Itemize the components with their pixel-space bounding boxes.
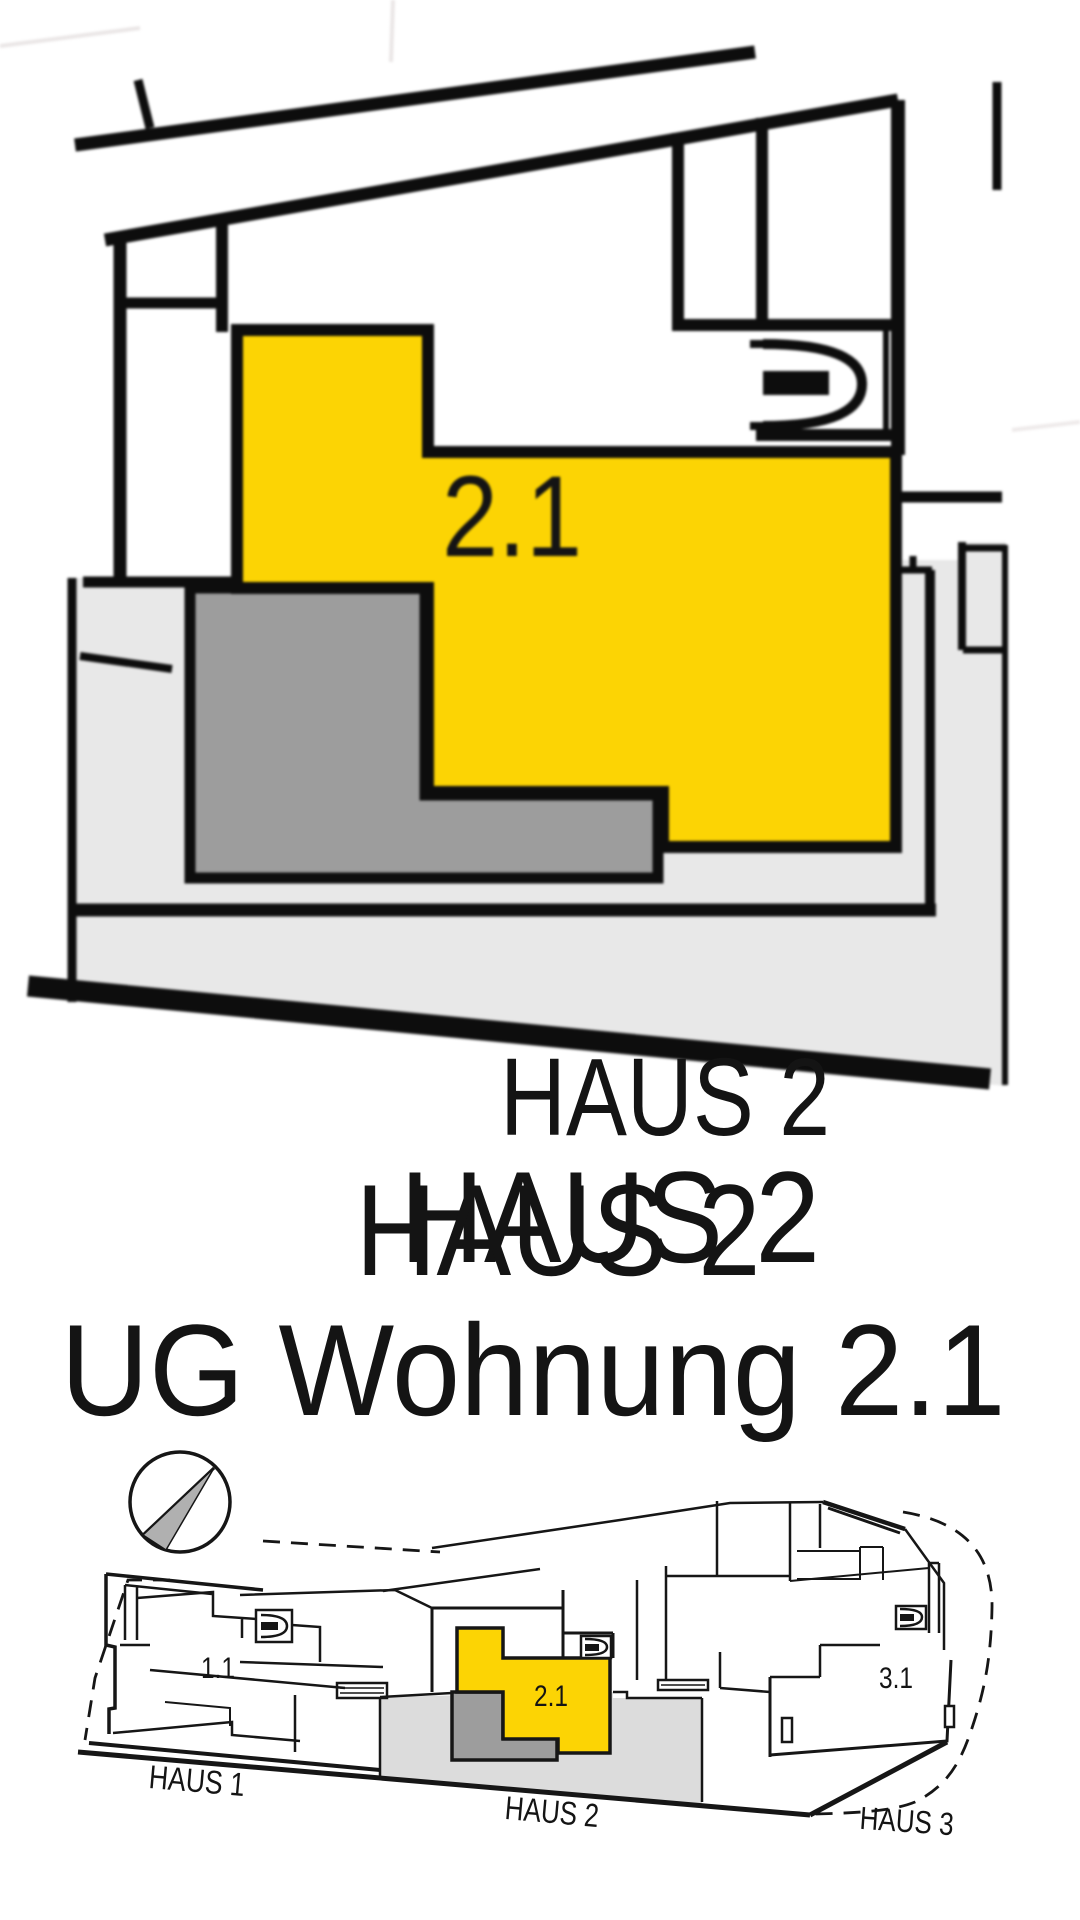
plan-page: 2.1 HAUS 2 HAUS 2 HAUS 2 UG Wohnung 2.1 [0, 0, 1080, 1920]
haus2-label: HAUS 2 [504, 1789, 601, 1834]
wall-line [75, 52, 755, 145]
haus3-building [720, 1502, 954, 1757]
north-arrow-icon [130, 1452, 230, 1552]
door-symbol [782, 1718, 792, 1742]
stair-icon [750, 344, 862, 426]
haus3-label: HAUS 3 [859, 1800, 955, 1842]
unit-label: 2.1 [442, 453, 582, 581]
detail-floorplan: 2.1 [0, 0, 1080, 1160]
faint-parcel-line [391, 0, 393, 62]
door-symbol [945, 1706, 954, 1727]
watermark-text: HAUS 2 [500, 1036, 830, 1159]
stair-icon [256, 1610, 292, 1642]
page-title-line1: HAUS 2 [356, 1157, 761, 1303]
faint-parcel-line [1012, 422, 1080, 430]
stair-icon [581, 1636, 611, 1658]
page-title-line2: UG Wohnung 2.1 [61, 1297, 1006, 1443]
site-unit-label-3-1: 3.1 [879, 1662, 913, 1695]
site-unit-label-1-1: 1.1 [201, 1652, 235, 1685]
site-plan: 1.1 2.1 3.1 HAUS 1 HAUS 2 HAUS 3 [0, 1440, 1080, 1920]
wall-tick [138, 80, 150, 128]
haus1-building [89, 1574, 383, 1770]
faint-parcel-line [0, 28, 140, 46]
stair-icon [896, 1606, 926, 1629]
title-block: HAUS 2 HAUS 2 HAUS 2 UG Wohnung 2.1 [0, 1020, 1080, 1460]
haus1-label: HAUS 1 [148, 1758, 247, 1803]
site-unit-label-2-1: 2.1 [534, 1680, 568, 1713]
